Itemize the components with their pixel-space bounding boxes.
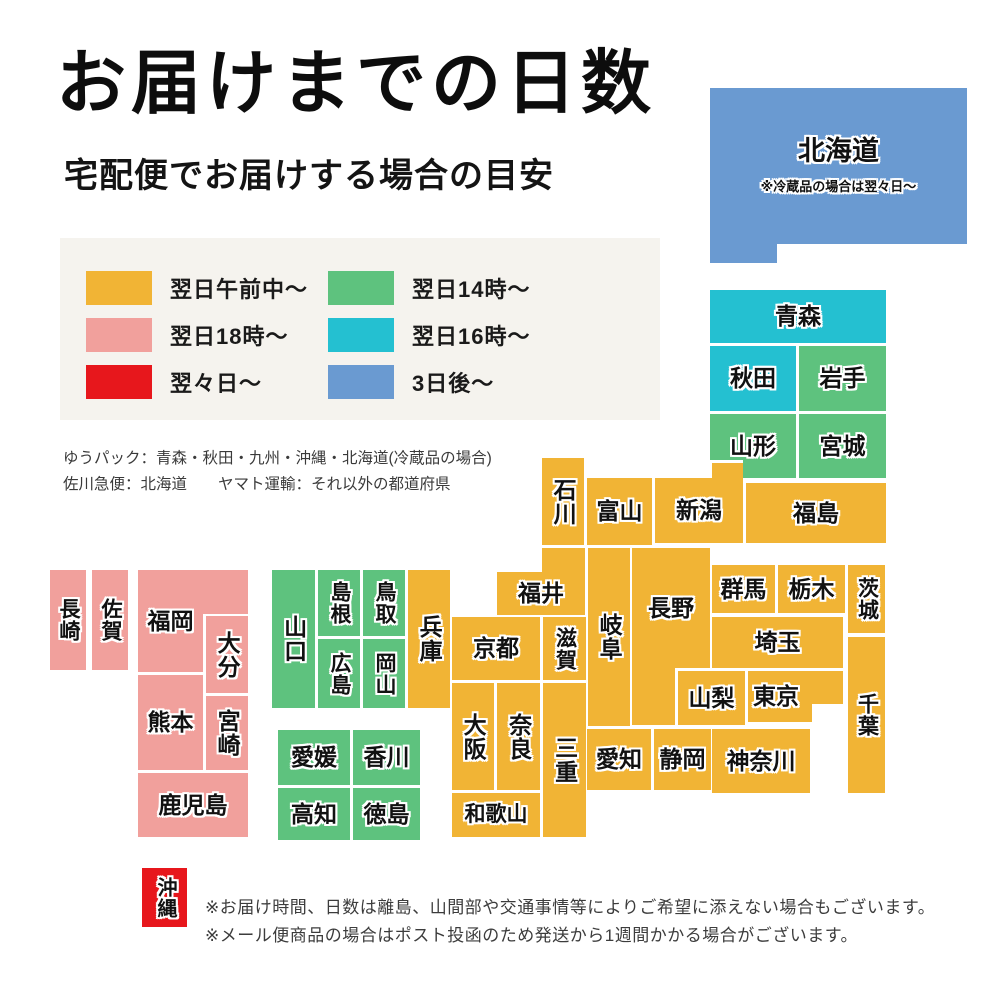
prefecture-block-kochi: 高知 xyxy=(278,788,350,840)
prefecture-label: 千葉 xyxy=(855,693,877,737)
prefecture-label: 奈良 xyxy=(506,713,530,761)
prefecture-block-shimane: 島根 xyxy=(318,570,360,636)
prefecture-block-mie: 三重 xyxy=(543,683,586,837)
prefecture-label: 新潟 xyxy=(676,498,722,522)
prefecture-block-shiga: 滋賀 xyxy=(543,617,586,680)
prefecture-label: 岐阜 xyxy=(597,613,621,661)
prefecture-block-miyazaki: 宮崎 xyxy=(206,696,248,770)
footnotes: ※お届け時間、日数は離島、山間部や交通事情等によりご希望に添えない場合もございま… xyxy=(205,894,995,950)
prefecture-block-oita: 大分 xyxy=(206,616,248,693)
prefecture-label: 愛知 xyxy=(596,747,642,771)
prefecture-label: 山口 xyxy=(281,615,305,663)
prefecture-block-hokkaido-foot xyxy=(710,243,777,263)
japan-delivery-map: 北海道※冷蔵品の場合は翌々日〜青森秋田岩手山形宮城新潟福島石川富山福井岐阜長野群… xyxy=(0,0,1000,1000)
prefecture-block-yamanashi: 山梨 xyxy=(678,671,745,725)
prefecture-block-fukui: 福井 xyxy=(497,572,585,615)
prefecture-label: 栃木 xyxy=(789,577,835,601)
prefecture-block-nagano: 長野 xyxy=(632,548,710,668)
prefecture-label: 高知 xyxy=(291,802,337,826)
prefecture-label: 福井 xyxy=(518,581,564,605)
prefecture-block-hyogo: 兵庫 xyxy=(408,570,450,708)
prefecture-block-aomori: 青森 xyxy=(710,290,886,343)
prefecture-label: 青森 xyxy=(775,304,821,328)
prefecture-label: 京都 xyxy=(473,636,519,660)
prefecture-label: 広島 xyxy=(328,652,350,696)
prefecture-label: 香川 xyxy=(364,745,410,769)
prefecture-block-tottori: 鳥取 xyxy=(363,570,405,636)
prefecture-block-hokkaido: 北海道※冷蔵品の場合は翌々日〜 xyxy=(710,88,967,244)
prefecture-label: 兵庫 xyxy=(417,615,441,663)
prefecture-block-kagoshima: 鹿児島 xyxy=(138,773,248,837)
prefecture-label: 沖縄 xyxy=(154,877,175,919)
prefecture-block-miyagi: 宮城 xyxy=(799,414,886,478)
prefecture-block-hiroshima: 広島 xyxy=(318,639,360,708)
prefecture-label: 群馬 xyxy=(721,577,767,601)
prefecture-label: 熊本 xyxy=(148,710,194,734)
prefecture-block-fukui-bump xyxy=(542,548,585,575)
prefecture-label: 東京 xyxy=(753,684,799,708)
prefecture-label: 大分 xyxy=(215,631,239,679)
footnote-line: ※お届け時間、日数は離島、山間部や交通事情等によりご希望に添えない場合もございま… xyxy=(205,894,995,922)
prefecture-label: 宮城 xyxy=(820,434,866,458)
prefecture-block-shizuoka: 静岡 xyxy=(654,729,711,790)
prefecture-block-tokushima: 徳島 xyxy=(353,788,420,840)
prefecture-label: 石川 xyxy=(551,478,575,526)
prefecture-block-fukushima: 福島 xyxy=(746,483,886,543)
prefecture-label: 秋田 xyxy=(730,366,776,390)
prefecture-label: 鳥取 xyxy=(373,581,395,625)
prefecture-label: 静岡 xyxy=(660,747,706,771)
prefecture-label: 和歌山 xyxy=(465,804,528,826)
prefecture-label: 岡山 xyxy=(373,652,395,696)
prefecture-block-gifu: 岐阜 xyxy=(588,548,630,726)
prefecture-label: 埼玉 xyxy=(755,630,801,654)
prefecture-label: 徳島 xyxy=(364,802,410,826)
prefecture-label: 島根 xyxy=(328,581,350,625)
prefecture-block-ishikawa: 石川 xyxy=(542,458,584,545)
prefecture-block-aichi: 愛知 xyxy=(587,729,651,790)
prefecture-label: 宮崎 xyxy=(215,709,239,757)
prefecture-label: 山形 xyxy=(730,434,776,458)
prefecture-label: 岩手 xyxy=(820,366,866,390)
footnote-line: ※メール便商品の場合はポスト投函のため発送から1週間かかる場合がございます。 xyxy=(205,922,995,950)
prefecture-block-akita: 秋田 xyxy=(710,346,796,411)
prefecture-label: 大阪 xyxy=(461,713,485,761)
prefecture-block-iwate: 岩手 xyxy=(799,346,886,411)
prefecture-block-okayama: 岡山 xyxy=(363,639,405,708)
prefecture-label: 北海道 xyxy=(798,137,879,165)
prefecture-note: ※冷蔵品の場合は翌々日〜 xyxy=(761,176,917,195)
prefecture-block-osaka: 大阪 xyxy=(452,683,494,790)
prefecture-block-ibaraki: 茨城 xyxy=(848,565,885,633)
prefecture-label: 長崎 xyxy=(57,598,79,642)
prefecture-block-nara: 奈良 xyxy=(497,683,540,790)
prefecture-block-kyoto: 京都 xyxy=(452,617,540,680)
prefecture-block-gunma: 群馬 xyxy=(712,565,775,613)
prefecture-label: 滋賀 xyxy=(553,627,575,671)
prefecture-block-yamaguchi: 山口 xyxy=(272,570,315,708)
prefecture-label: 佐賀 xyxy=(99,598,121,642)
prefecture-block-saga: 佐賀 xyxy=(92,570,128,670)
prefecture-block-wakayama: 和歌山 xyxy=(452,793,540,837)
prefecture-block-kanagawa: 神奈川 xyxy=(712,729,810,793)
prefecture-block-tochigi: 栃木 xyxy=(778,565,845,613)
prefecture-label: 茨城 xyxy=(855,577,877,621)
prefecture-block-okinawa: 沖縄 xyxy=(142,868,187,927)
prefecture-block-chiba: 千葉 xyxy=(848,637,885,793)
prefecture-label: 神奈川 xyxy=(727,749,796,773)
prefecture-label: 長野 xyxy=(648,596,694,620)
prefecture-label: 福岡 xyxy=(148,609,194,633)
prefecture-block-kagawa: 香川 xyxy=(353,730,420,785)
prefecture-label: 福島 xyxy=(793,501,839,525)
prefecture-block-fukuoka: 福岡 xyxy=(138,570,203,672)
prefecture-block-saitama: 埼玉 xyxy=(712,617,843,668)
prefecture-label: 富山 xyxy=(597,499,643,523)
prefecture-label: 鹿児島 xyxy=(159,793,228,817)
prefecture-block-kumamoto: 熊本 xyxy=(138,675,203,770)
prefecture-block-tokyo-bay-notch xyxy=(812,704,843,723)
prefecture-label: 三重 xyxy=(552,736,576,784)
prefecture-block-niigata: 新潟 xyxy=(655,478,743,543)
prefecture-label: 山梨 xyxy=(689,686,735,710)
prefecture-block-nagasaki: 長崎 xyxy=(50,570,86,670)
prefecture-label: 愛媛 xyxy=(291,745,337,769)
prefecture-block-toyama: 富山 xyxy=(587,478,652,545)
prefecture-block-ehime: 愛媛 xyxy=(278,730,350,785)
